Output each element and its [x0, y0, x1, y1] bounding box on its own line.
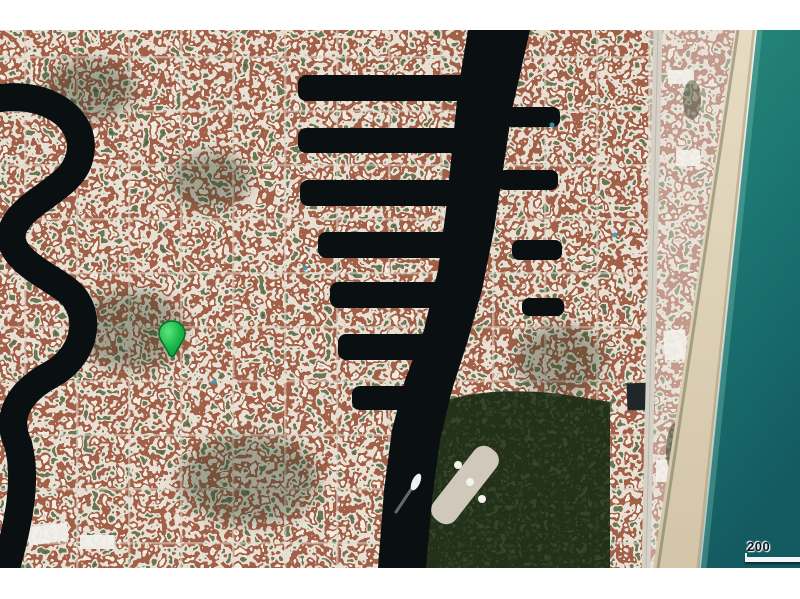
location-pin[interactable]: [150, 315, 194, 371]
satellite-imagery: [0, 30, 800, 568]
aerial-map[interactable]: 200 © 2019 Microsoft Corporation - Bing: [0, 30, 800, 568]
mangrove-park: [418, 391, 610, 568]
scale-bar: 200: [744, 539, 800, 565]
scale-bar-label: 200: [747, 539, 770, 554]
scale-bar-line: [745, 557, 800, 562]
page-canvas: 200 © 2019 Microsoft Corporation - Bing: [0, 0, 800, 599]
pin-icon: [159, 321, 185, 356]
